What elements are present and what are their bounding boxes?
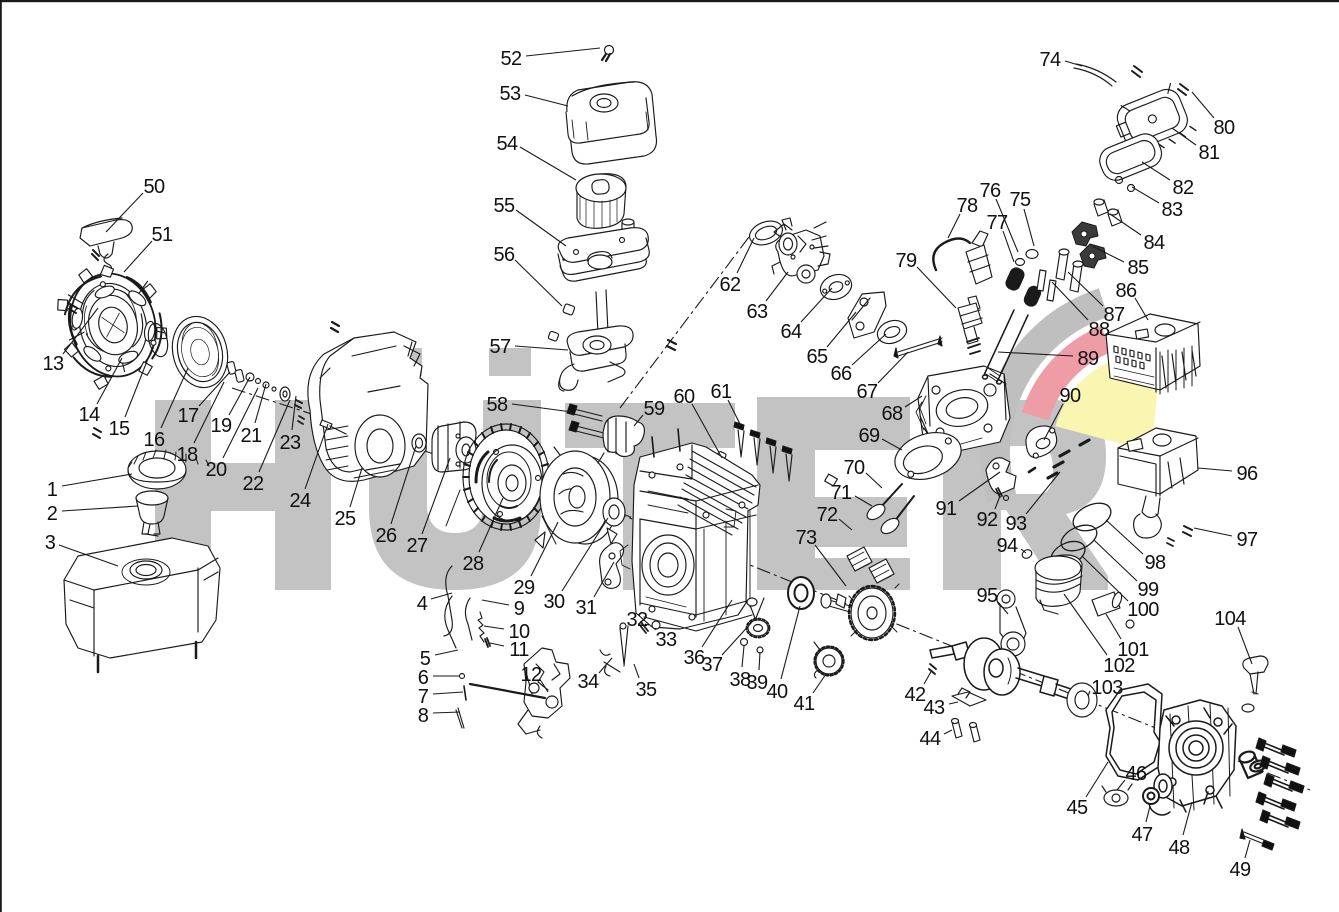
svg-text:19: 19 xyxy=(210,415,232,437)
svg-text:15: 15 xyxy=(108,418,130,440)
svg-text:94: 94 xyxy=(996,535,1018,557)
svg-text:48: 48 xyxy=(1168,837,1190,859)
svg-text:51: 51 xyxy=(151,224,173,246)
svg-text:96: 96 xyxy=(1236,463,1258,485)
svg-text:74: 74 xyxy=(1039,49,1061,71)
svg-text:37: 37 xyxy=(701,654,723,676)
svg-text:55: 55 xyxy=(493,195,515,217)
svg-text:61: 61 xyxy=(710,381,732,403)
svg-text:11: 11 xyxy=(509,639,529,661)
svg-text:68: 68 xyxy=(881,403,903,425)
svg-text:23: 23 xyxy=(279,432,301,454)
svg-text:33: 33 xyxy=(655,629,677,651)
svg-text:34: 34 xyxy=(577,671,599,693)
svg-text:84: 84 xyxy=(1143,232,1165,254)
svg-text:52: 52 xyxy=(500,48,522,70)
svg-text:1: 1 xyxy=(47,479,58,501)
svg-text:60: 60 xyxy=(673,386,695,408)
svg-text:79: 79 xyxy=(895,250,917,272)
svg-text:78: 78 xyxy=(956,195,978,217)
svg-text:14: 14 xyxy=(78,404,100,426)
svg-text:44: 44 xyxy=(919,728,941,750)
svg-text:71: 71 xyxy=(830,482,852,504)
svg-text:103: 103 xyxy=(1091,677,1123,699)
svg-text:49: 49 xyxy=(1229,859,1251,881)
svg-text:3: 3 xyxy=(45,532,56,554)
svg-text:8: 8 xyxy=(418,705,429,727)
svg-text:81: 81 xyxy=(1198,142,1220,164)
svg-text:72: 72 xyxy=(816,504,838,526)
svg-text:53: 53 xyxy=(499,83,521,105)
svg-text:40: 40 xyxy=(766,681,788,703)
svg-text:88: 88 xyxy=(1088,319,1110,341)
svg-text:63: 63 xyxy=(746,301,768,323)
svg-text:12: 12 xyxy=(520,664,542,686)
svg-text:59: 59 xyxy=(643,398,665,420)
svg-text:93: 93 xyxy=(1005,513,1027,535)
svg-text:45: 45 xyxy=(1066,797,1088,819)
svg-text:58: 58 xyxy=(486,394,508,416)
svg-text:4: 4 xyxy=(417,593,428,615)
svg-text:39: 39 xyxy=(746,672,768,694)
svg-text:91: 91 xyxy=(935,498,957,520)
svg-text:76: 76 xyxy=(979,180,1001,202)
svg-text:28: 28 xyxy=(462,553,484,575)
svg-text:89: 89 xyxy=(1077,348,1099,370)
svg-text:30: 30 xyxy=(543,591,565,613)
svg-text:32: 32 xyxy=(626,609,648,631)
svg-text:98: 98 xyxy=(1144,552,1166,574)
svg-text:29: 29 xyxy=(513,577,535,599)
svg-text:54: 54 xyxy=(496,133,518,155)
svg-text:41: 41 xyxy=(793,693,815,715)
svg-text:85: 85 xyxy=(1127,257,1149,279)
svg-text:22: 22 xyxy=(242,473,264,495)
svg-text:82: 82 xyxy=(1172,177,1194,199)
svg-text:92: 92 xyxy=(976,509,998,531)
svg-text:9: 9 xyxy=(514,598,525,620)
svg-text:46: 46 xyxy=(1125,763,1147,785)
svg-text:21: 21 xyxy=(240,425,262,447)
svg-text:73: 73 xyxy=(795,527,817,549)
svg-text:99: 99 xyxy=(1137,579,1159,601)
svg-text:16: 16 xyxy=(143,429,165,451)
svg-text:17: 17 xyxy=(177,405,199,427)
svg-text:27: 27 xyxy=(406,535,428,557)
svg-text:83: 83 xyxy=(1161,199,1183,221)
svg-text:77: 77 xyxy=(986,212,1008,234)
svg-text:50: 50 xyxy=(143,176,165,198)
svg-text:69: 69 xyxy=(858,425,880,447)
svg-text:64: 64 xyxy=(780,321,802,343)
svg-text:66: 66 xyxy=(830,363,852,385)
svg-text:70: 70 xyxy=(843,457,865,479)
svg-text:26: 26 xyxy=(375,525,397,547)
svg-text:20: 20 xyxy=(205,459,227,481)
svg-text:67: 67 xyxy=(856,381,878,403)
svg-text:97: 97 xyxy=(1236,529,1258,551)
svg-text:47: 47 xyxy=(1131,824,1153,846)
svg-text:80: 80 xyxy=(1213,117,1235,139)
svg-text:86: 86 xyxy=(1115,280,1137,302)
svg-text:90: 90 xyxy=(1059,385,1081,407)
svg-text:43: 43 xyxy=(923,697,945,719)
svg-text:2: 2 xyxy=(47,503,58,525)
svg-text:25: 25 xyxy=(334,508,356,530)
svg-text:75: 75 xyxy=(1009,189,1031,211)
svg-text:95: 95 xyxy=(976,585,998,607)
svg-text:24: 24 xyxy=(289,490,311,512)
svg-text:31: 31 xyxy=(575,597,597,619)
svg-text:62: 62 xyxy=(719,274,741,296)
svg-text:100: 100 xyxy=(1127,599,1159,621)
svg-text:18: 18 xyxy=(176,444,198,466)
svg-text:104: 104 xyxy=(1214,608,1246,630)
svg-text:35: 35 xyxy=(635,679,657,701)
svg-text:57: 57 xyxy=(489,336,511,358)
svg-text:56: 56 xyxy=(493,244,515,266)
svg-text:13: 13 xyxy=(42,353,64,375)
svg-text:65: 65 xyxy=(806,346,828,368)
svg-text:102: 102 xyxy=(1103,655,1135,677)
